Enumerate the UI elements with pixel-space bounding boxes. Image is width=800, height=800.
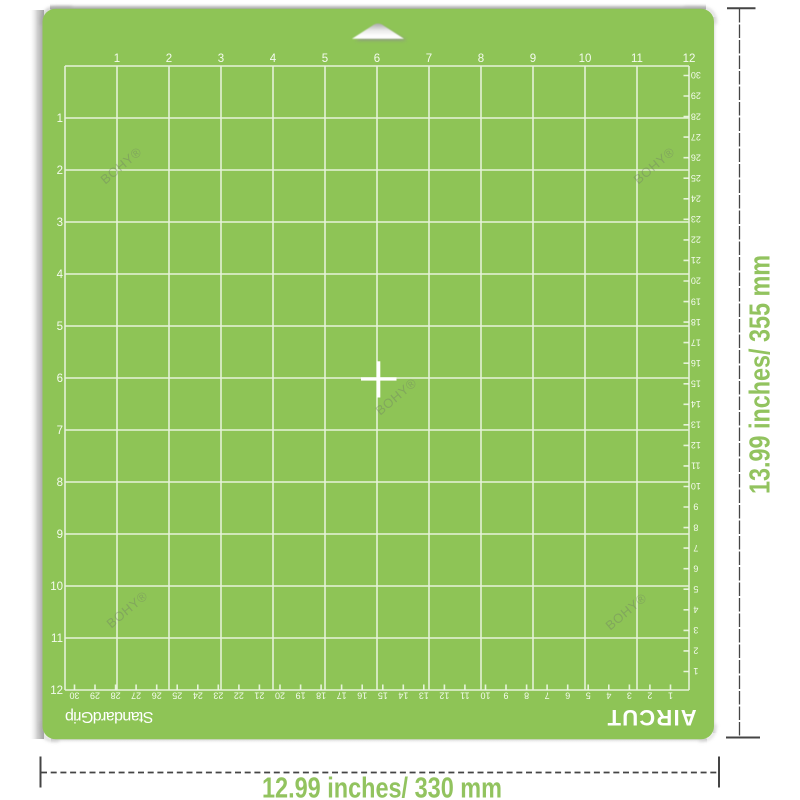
svg-text:3: 3 bbox=[57, 217, 63, 229]
svg-text:12: 12 bbox=[691, 440, 701, 450]
svg-text:25: 25 bbox=[172, 691, 182, 701]
svg-text:12: 12 bbox=[50, 685, 63, 697]
svg-text:3: 3 bbox=[218, 53, 224, 65]
svg-text:24: 24 bbox=[691, 194, 701, 204]
svg-text:20: 20 bbox=[691, 276, 701, 286]
svg-text:3: 3 bbox=[693, 625, 698, 635]
svg-text:16: 16 bbox=[357, 691, 367, 701]
svg-text:17: 17 bbox=[337, 691, 347, 701]
svg-text:22: 22 bbox=[234, 691, 244, 701]
svg-text:9: 9 bbox=[530, 53, 536, 65]
svg-text:5: 5 bbox=[586, 691, 591, 701]
svg-text:10: 10 bbox=[480, 691, 490, 701]
svg-text:12.99 inches/ 330 mm: 12.99 inches/ 330 mm bbox=[262, 773, 502, 800]
svg-text:9: 9 bbox=[693, 502, 698, 512]
svg-text:6: 6 bbox=[374, 53, 380, 65]
svg-text:4: 4 bbox=[693, 605, 698, 615]
svg-text:8: 8 bbox=[57, 477, 63, 489]
svg-text:4: 4 bbox=[606, 691, 611, 701]
svg-text:4: 4 bbox=[270, 53, 277, 65]
svg-text:2: 2 bbox=[166, 53, 172, 65]
svg-text:18: 18 bbox=[691, 317, 701, 327]
svg-text:14: 14 bbox=[398, 691, 408, 701]
svg-text:5: 5 bbox=[693, 584, 698, 594]
svg-text:1: 1 bbox=[693, 666, 698, 676]
svg-text:6: 6 bbox=[693, 563, 698, 573]
svg-text:28: 28 bbox=[691, 111, 701, 121]
svg-text:12: 12 bbox=[683, 53, 696, 65]
svg-text:13: 13 bbox=[419, 691, 429, 701]
svg-text:6: 6 bbox=[57, 373, 63, 385]
svg-text:22: 22 bbox=[691, 235, 701, 245]
svg-text:StandardGrip: StandardGrip bbox=[65, 708, 154, 725]
svg-text:11: 11 bbox=[460, 691, 469, 701]
svg-text:7: 7 bbox=[693, 543, 698, 553]
svg-text:15: 15 bbox=[691, 378, 701, 388]
svg-text:8: 8 bbox=[524, 691, 529, 701]
svg-text:3: 3 bbox=[627, 691, 632, 701]
svg-text:23: 23 bbox=[213, 691, 223, 701]
svg-text:13.99 inches/ 355 mm: 13.99 inches/ 355 mm bbox=[745, 255, 777, 494]
svg-text:11: 11 bbox=[631, 53, 643, 65]
svg-text:12: 12 bbox=[439, 691, 449, 701]
svg-text:26: 26 bbox=[691, 152, 701, 162]
svg-text:5: 5 bbox=[57, 321, 63, 333]
svg-text:AIRCUT: AIRCUT bbox=[606, 705, 696, 730]
svg-text:29: 29 bbox=[691, 91, 701, 101]
svg-text:8: 8 bbox=[693, 522, 698, 532]
svg-text:21: 21 bbox=[254, 691, 264, 701]
svg-text:1: 1 bbox=[114, 53, 120, 65]
svg-text:10: 10 bbox=[50, 581, 63, 593]
svg-text:10: 10 bbox=[691, 481, 701, 491]
svg-text:6: 6 bbox=[565, 691, 570, 701]
svg-text:1: 1 bbox=[668, 691, 673, 701]
svg-text:18: 18 bbox=[316, 691, 326, 701]
svg-text:2: 2 bbox=[57, 165, 63, 177]
svg-text:23: 23 bbox=[691, 214, 701, 224]
svg-text:30: 30 bbox=[69, 691, 79, 701]
svg-text:29: 29 bbox=[90, 691, 100, 701]
svg-text:28: 28 bbox=[111, 691, 121, 701]
svg-text:14: 14 bbox=[691, 399, 701, 409]
svg-text:8: 8 bbox=[478, 53, 484, 65]
svg-text:25: 25 bbox=[691, 173, 701, 183]
svg-text:13: 13 bbox=[691, 419, 701, 429]
svg-text:9: 9 bbox=[503, 691, 508, 701]
svg-text:5: 5 bbox=[322, 53, 328, 65]
svg-text:7: 7 bbox=[426, 53, 432, 65]
svg-text:27: 27 bbox=[691, 132, 701, 142]
svg-text:24: 24 bbox=[193, 691, 203, 701]
svg-text:26: 26 bbox=[152, 691, 162, 701]
svg-text:16: 16 bbox=[691, 358, 701, 368]
svg-text:2: 2 bbox=[693, 646, 698, 656]
svg-text:19: 19 bbox=[691, 296, 701, 306]
svg-text:27: 27 bbox=[131, 691, 141, 701]
svg-text:10: 10 bbox=[579, 53, 592, 65]
svg-text:20: 20 bbox=[275, 691, 285, 701]
svg-text:9: 9 bbox=[57, 529, 63, 541]
svg-text:17: 17 bbox=[691, 337, 701, 347]
svg-text:15: 15 bbox=[378, 691, 388, 701]
svg-text:11: 11 bbox=[51, 633, 63, 645]
svg-text:21: 21 bbox=[691, 255, 701, 265]
svg-text:30: 30 bbox=[691, 70, 701, 80]
svg-text:2: 2 bbox=[647, 691, 652, 701]
svg-text:19: 19 bbox=[296, 691, 306, 701]
svg-text:7: 7 bbox=[57, 425, 63, 437]
svg-text:11: 11 bbox=[691, 461, 700, 471]
svg-text:1: 1 bbox=[57, 113, 63, 125]
svg-text:4: 4 bbox=[57, 269, 64, 281]
svg-text:7: 7 bbox=[545, 691, 550, 701]
